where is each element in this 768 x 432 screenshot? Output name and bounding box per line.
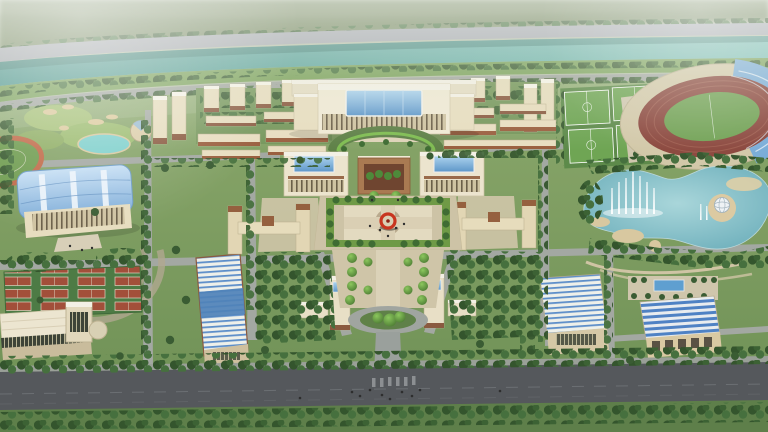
peninsula (612, 229, 644, 243)
campus-aerial-rendering (0, 0, 768, 432)
natatorium-rotunda (89, 321, 107, 339)
rendering-canvas (0, 0, 768, 432)
lake-tree-band-west (577, 180, 603, 224)
dorm-east-edge-trees (438, 150, 558, 158)
lab-a-roof (540, 274, 607, 335)
lab-building-south-a (540, 274, 609, 355)
lab-west-trees (520, 268, 535, 356)
grove-west-of-axis (252, 252, 336, 344)
courts-north-trees (0, 260, 146, 268)
roadside-trees (604, 252, 613, 360)
workshop-building (196, 254, 249, 368)
workshop-glass-band (199, 288, 245, 318)
central-plaza (314, 195, 462, 250)
gate-wing-east-skylight (434, 156, 474, 172)
garden-pool (654, 280, 684, 291)
island-sphere-pavilion (715, 198, 730, 213)
beach (726, 177, 762, 191)
